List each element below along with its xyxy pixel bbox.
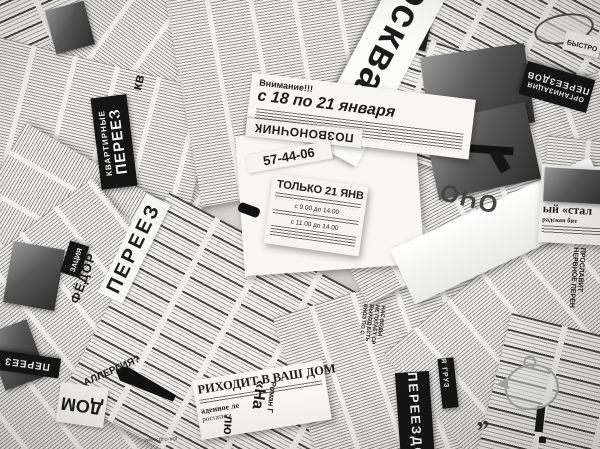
cargo-text: Я ГРУЗ [439, 358, 449, 389]
website-text: www.pro-vol [144, 436, 177, 444]
steel-headline-scrap: ый «стал радская бит [538, 164, 600, 246]
website-scrap: www.pro-vol [144, 427, 178, 447]
article-photo [543, 167, 600, 204]
photo-fragment [3, 241, 65, 311]
moves-vertical-banner: ПЕРЕЕЗДОВ [395, 371, 435, 449]
dom-scrap: ДОМ [55, 382, 108, 428]
teapot-illustration [494, 346, 568, 419]
lyu-scrap: лю [219, 415, 238, 436]
moves-vertical-text: ПЕРЕЕЗДОВ [405, 372, 427, 449]
teapot-spout-shape [495, 377, 509, 391]
newspaper-collage-photo: осква КВАРТИРНЫЕ ПЕРЕЕЗ Внимание!!! с 18… [0, 0, 600, 449]
fine-print-lines [541, 225, 600, 237]
lyu-text: лю [221, 415, 237, 435]
exclamation-dot-icon [539, 437, 547, 444]
dom-text: ДОМ [60, 392, 104, 419]
only-january-ad-scrap: ТОЛЬКО 21 ЯНВ с 9.00 до 14.00 с 11.00 до… [264, 174, 369, 257]
fast-text: БЫСТРО [566, 39, 598, 53]
move-corner-text: ПЕРЕЕЗ [3, 355, 50, 372]
